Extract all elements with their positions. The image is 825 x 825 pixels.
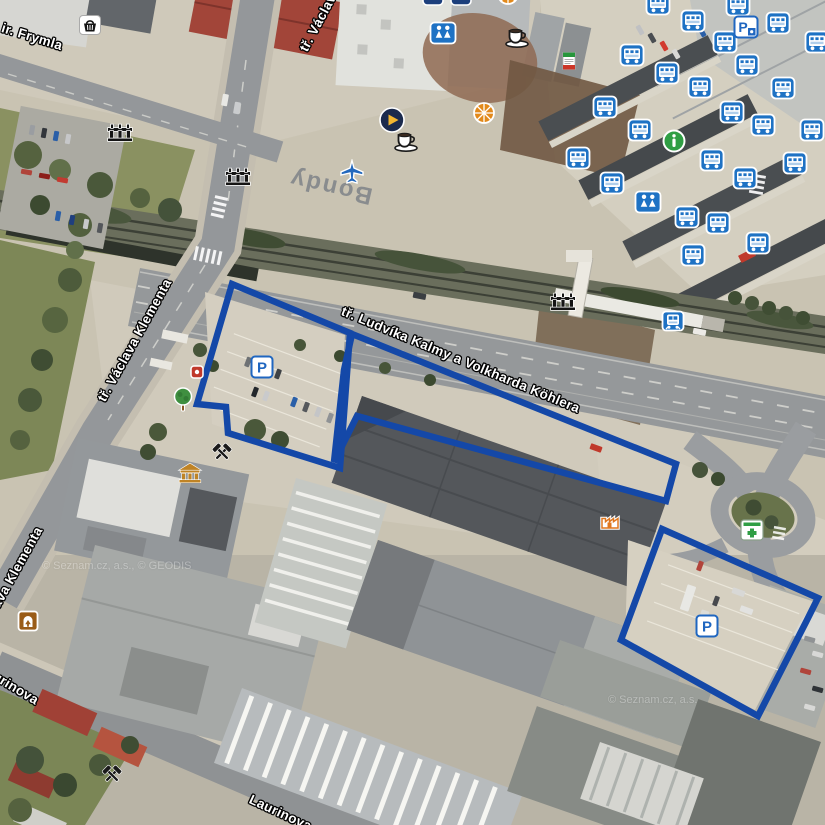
industrial-monument-icon[interactable] xyxy=(99,763,125,787)
sports-court-icon[interactable] xyxy=(473,102,496,125)
cafe-icon[interactable] xyxy=(502,24,532,49)
industrial-monument-icon[interactable] xyxy=(209,441,235,465)
aerial-map[interactable]: Bondy© Seznam.cz, a.s., © GEODIS© Seznam… xyxy=(0,0,825,825)
bus-stop-icon[interactable] xyxy=(800,119,825,142)
bus-stop-icon[interactable] xyxy=(726,0,751,17)
bus-stop-icon[interactable] xyxy=(600,172,625,195)
bus-stop-icon[interactable] xyxy=(566,147,591,170)
poi-logo-icon[interactable] xyxy=(379,107,406,134)
museum-icon[interactable] xyxy=(177,461,203,483)
sports-court-icon[interactable] xyxy=(497,0,520,6)
pharmacy-icon[interactable] xyxy=(740,519,764,541)
bus-stop-icon[interactable] xyxy=(700,149,725,172)
paid-parking-icon[interactable]: P xyxy=(734,16,759,39)
shopping-icon[interactable] xyxy=(79,15,102,36)
bus-stop-icon[interactable] xyxy=(646,0,671,16)
bridge-icon[interactable] xyxy=(105,122,135,144)
bus-stop-icon[interactable] xyxy=(720,101,745,124)
wc-icon[interactable] xyxy=(635,191,662,214)
bus-stop-icon[interactable] xyxy=(766,12,791,35)
parking-zone-central[interactable] xyxy=(334,334,676,501)
airport-icon[interactable] xyxy=(339,159,365,185)
bus-stop-icon[interactable] xyxy=(675,206,700,229)
bus-stop-icon[interactable] xyxy=(655,62,680,85)
bridge-icon[interactable] xyxy=(223,166,253,188)
bus-stop-icon[interactable] xyxy=(751,114,776,137)
bus-stop-icon[interactable] xyxy=(620,44,645,67)
bridge-icon[interactable] xyxy=(548,291,578,313)
bus-stop-icon[interactable] xyxy=(593,96,618,119)
bus-stop-icon[interactable] xyxy=(688,76,713,99)
supermarket-logo-icon[interactable] xyxy=(563,52,576,70)
train-station-icon[interactable] xyxy=(662,311,685,332)
info-point-icon[interactable] xyxy=(662,129,687,154)
wc-icon[interactable] xyxy=(430,22,457,45)
bus-stop-icon[interactable] xyxy=(681,244,706,267)
poi-partial-icon[interactable] xyxy=(422,0,444,6)
bus-stop-icon[interactable] xyxy=(771,77,796,100)
poi-icon[interactable] xyxy=(190,365,204,379)
bus-stop-icon[interactable] xyxy=(805,31,825,54)
bus-stop-icon[interactable] xyxy=(783,152,808,175)
bus-stop-icon[interactable] xyxy=(706,212,731,235)
bus-stop-icon[interactable] xyxy=(746,232,771,255)
bus-stop-icon[interactable] xyxy=(628,119,653,142)
svg-text:P: P xyxy=(257,360,267,377)
parking-zone-east[interactable] xyxy=(621,529,818,716)
svg-text:P: P xyxy=(738,19,747,35)
bus-stop-icon[interactable] xyxy=(735,54,760,77)
memorial-tree-icon[interactable] xyxy=(171,387,196,414)
parking-icon[interactable]: P xyxy=(251,356,274,379)
copyright-watermark: © Seznam.cz, a.s. xyxy=(608,694,697,706)
bus-stop-icon[interactable] xyxy=(733,167,758,190)
svg-text:P: P xyxy=(702,619,712,636)
copyright-watermark: © Seznam.cz, a.s., © GEODIS xyxy=(42,560,191,572)
monument-gate-icon[interactable] xyxy=(18,611,39,632)
poi-partial-icon[interactable] xyxy=(450,0,472,6)
factory-shop-icon[interactable] xyxy=(599,511,621,531)
parking-icon[interactable]: P xyxy=(696,615,719,638)
bus-stop-icon[interactable] xyxy=(681,10,706,33)
